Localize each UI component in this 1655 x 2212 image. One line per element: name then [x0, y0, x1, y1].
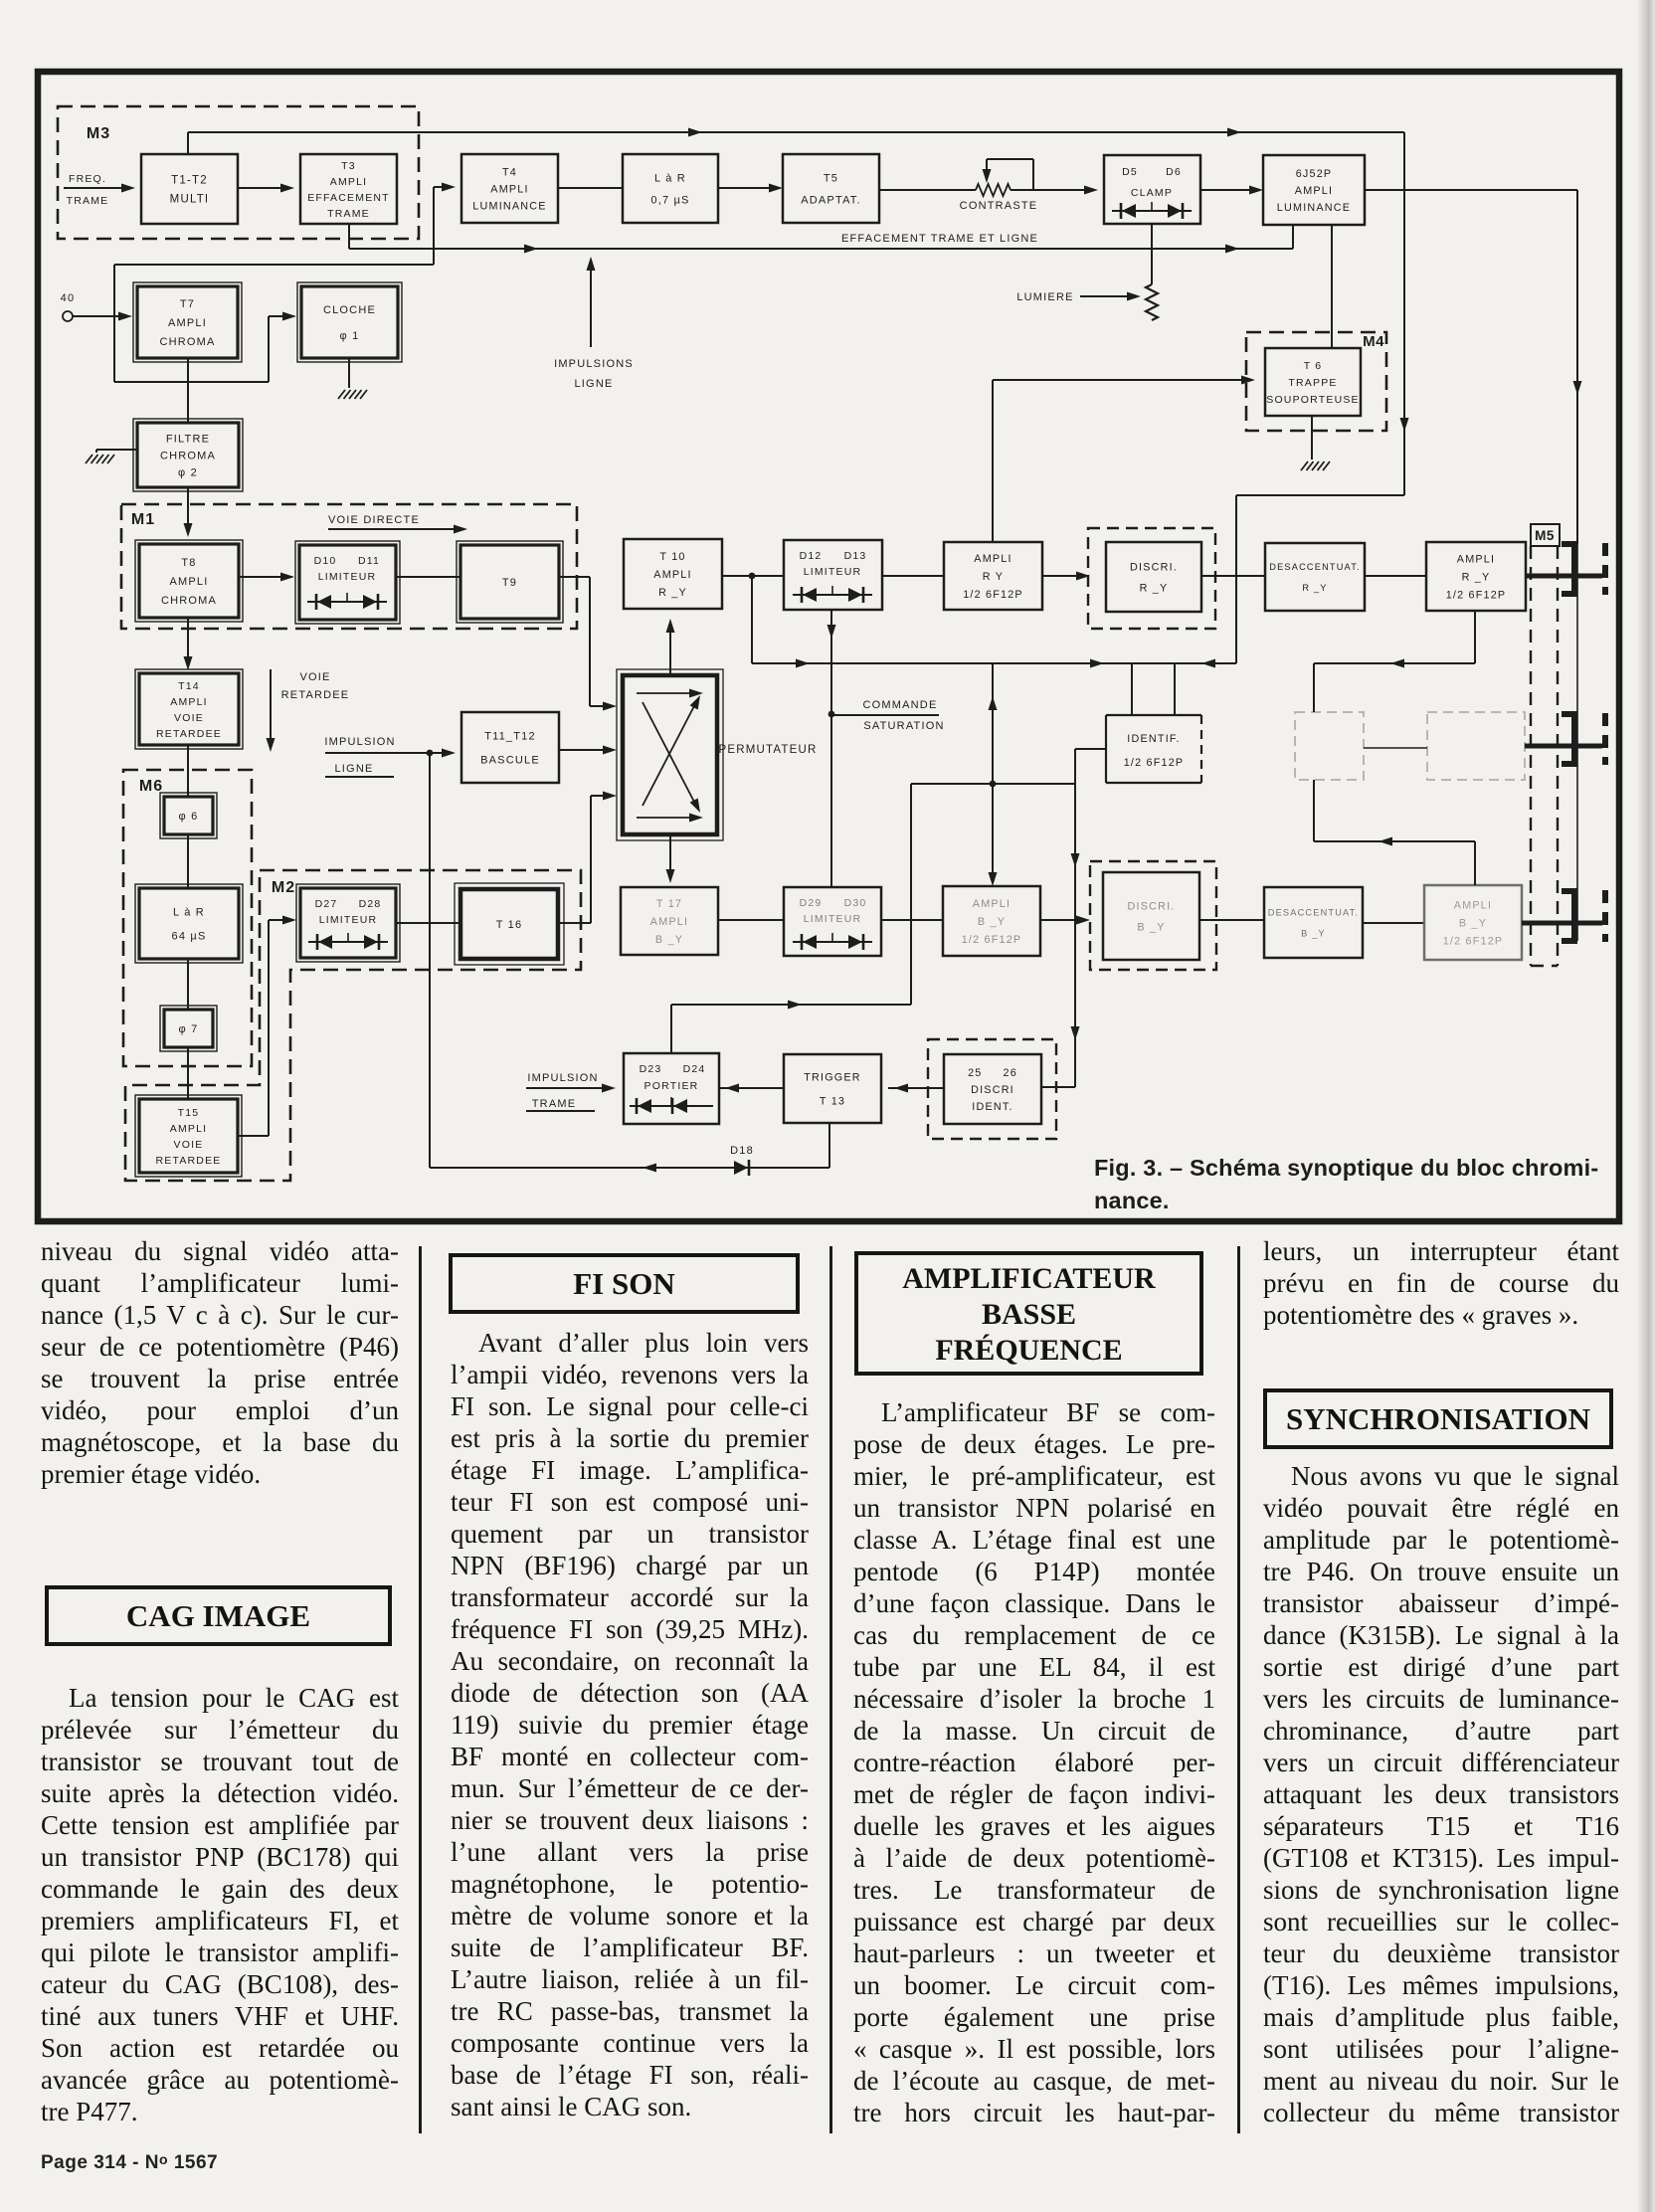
svg-text:TRAME: TRAME: [327, 208, 370, 220]
svg-text:1/2 6F12P: 1/2 6F12P: [963, 589, 1023, 601]
svg-text:0,7 µS: 0,7 µS: [650, 194, 689, 206]
svg-text:RETARDEE: RETARDEE: [156, 1155, 222, 1167]
svg-text:CONTRASTE: CONTRASTE: [960, 200, 1038, 212]
svg-text:TRIGGER: TRIGGER: [804, 1071, 861, 1083]
svg-text:IMPULSION: IMPULSION: [527, 1072, 598, 1084]
svg-text:AMPLI: AMPLI: [168, 317, 207, 329]
svg-text:M4: M4: [1363, 333, 1384, 350]
svg-text:φ 7: φ 7: [179, 1023, 199, 1035]
svg-text:T 6: T 6: [1304, 360, 1323, 372]
svg-text:1/2 6F12P: 1/2 6F12P: [1443, 935, 1504, 947]
svg-text:AMPLI: AMPLI: [973, 898, 1011, 910]
svg-text:φ 1: φ 1: [340, 330, 360, 342]
svg-text:RETARDEE: RETARDEE: [156, 728, 222, 740]
svg-text:LIGNE: LIGNE: [574, 378, 613, 390]
svg-text:R _Y: R _Y: [1462, 571, 1491, 583]
svg-text:PORTIER: PORTIER: [644, 1080, 699, 1092]
svg-text:25 26: 25 26: [968, 1067, 1017, 1079]
svg-text:φ 2: φ 2: [178, 466, 198, 478]
svg-text:FREQ.: FREQ.: [69, 173, 106, 185]
svg-text:Fig. 3. – Schéma synoptique du: Fig. 3. – Schéma synoptique du bloc chro…: [1094, 1155, 1598, 1181]
svg-text:VOIE DIRECTE: VOIE DIRECTE: [328, 514, 420, 526]
svg-text:AMPLI: AMPLI: [170, 1123, 208, 1135]
svg-text:AMPLI: AMPLI: [1457, 553, 1495, 565]
svg-text:D13: D13: [844, 550, 867, 562]
svg-text:B _Y: B _Y: [978, 916, 1006, 928]
svg-text:L à R: L à R: [173, 906, 205, 918]
svg-text:T8: T8: [181, 557, 196, 569]
svg-text:D6: D6: [1166, 166, 1182, 178]
svg-text:nance.: nance.: [1094, 1188, 1170, 1213]
svg-text:DISCRI.: DISCRI.: [1130, 561, 1178, 573]
svg-text:COMMANDE: COMMANDE: [863, 699, 938, 711]
svg-text:40: 40: [61, 292, 76, 304]
svg-text:AMPLI: AMPLI: [1295, 185, 1333, 197]
svg-text:MULTI: MULTI: [170, 194, 210, 206]
svg-text:B _Y: B _Y: [655, 934, 683, 946]
svg-text:T9: T9: [502, 577, 517, 589]
svg-text:B _Y: B _Y: [1459, 917, 1487, 929]
svg-text:D28: D28: [359, 898, 382, 910]
svg-text:R _Y: R _Y: [658, 587, 687, 599]
svg-text:IDENTIF.: IDENTIF.: [1127, 733, 1180, 745]
svg-text:D5: D5: [1122, 166, 1138, 178]
svg-text:LIMITEUR: LIMITEUR: [318, 571, 377, 583]
svg-text:T 10: T 10: [659, 551, 685, 563]
svg-text:D10: D10: [314, 555, 337, 567]
svg-text:LUMINANCE: LUMINANCE: [472, 200, 546, 212]
svg-text:D23: D23: [640, 1063, 662, 1075]
svg-text:PERMUTATEUR: PERMUTATEUR: [718, 744, 817, 756]
svg-text:LIGNE: LIGNE: [334, 763, 373, 775]
svg-text:LIMITEUR: LIMITEUR: [804, 566, 862, 578]
svg-text:RETARDEE: RETARDEE: [281, 689, 350, 701]
svg-text:T7: T7: [180, 298, 195, 310]
svg-text:CLOCHE: CLOCHE: [323, 304, 376, 316]
svg-text:T1-T2: T1-T2: [171, 175, 208, 187]
svg-text:SOUPORTEUSE: SOUPORTEUSE: [1266, 394, 1360, 406]
svg-text:T14: T14: [178, 680, 200, 692]
svg-text:DESACCENTUAT.: DESACCENTUAT.: [1268, 907, 1360, 917]
svg-text:D18: D18: [730, 1145, 754, 1157]
svg-text:AMPLI: AMPLI: [330, 176, 368, 188]
svg-text:L à R: L à R: [654, 172, 686, 184]
svg-text:LUMINANCE: LUMINANCE: [1277, 202, 1351, 214]
svg-text:M5: M5: [1535, 528, 1555, 543]
svg-text:AMPLI: AMPLI: [653, 569, 691, 581]
svg-text:M1: M1: [131, 511, 155, 528]
svg-text:T5: T5: [824, 172, 838, 184]
svg-text:1/2 6F12P: 1/2 6F12P: [1124, 757, 1185, 769]
svg-text:LUMIERE: LUMIERE: [1016, 291, 1073, 303]
svg-text:LIMITEUR: LIMITEUR: [319, 914, 378, 926]
svg-text:CHROMA: CHROMA: [160, 450, 216, 461]
svg-text:T 17: T 17: [656, 898, 682, 910]
svg-text:DESACCENTUAT.: DESACCENTUAT.: [1269, 562, 1361, 572]
svg-text:VOIE: VOIE: [174, 712, 204, 724]
svg-text:TRAPPE: TRAPPE: [1288, 377, 1337, 389]
svg-text:1/2 6F12P: 1/2 6F12P: [962, 934, 1022, 946]
svg-text:EFFACEMENT TRAME ET LIGNE: EFFACEMENT TRAME ET LIGNE: [841, 233, 1038, 245]
svg-text:D30: D30: [844, 897, 867, 909]
svg-text:AMPLI: AMPLI: [650, 916, 688, 928]
svg-text:T11_T12: T11_T12: [484, 730, 536, 742]
svg-text:D11: D11: [358, 555, 380, 567]
svg-text:T15: T15: [178, 1107, 200, 1119]
svg-text:R _Y: R _Y: [1302, 583, 1327, 593]
svg-text:AMPLI: AMPLI: [1454, 899, 1492, 911]
svg-text:CHROMA: CHROMA: [161, 595, 217, 607]
svg-text:M3: M3: [87, 125, 110, 142]
svg-text:FILTRE: FILTRE: [166, 433, 210, 445]
svg-text:VOIE: VOIE: [174, 1139, 204, 1151]
svg-text:TRAME: TRAME: [532, 1098, 577, 1110]
svg-text:64 µS: 64 µS: [172, 930, 207, 942]
svg-text:DISCRI.: DISCRI.: [1128, 900, 1176, 912]
svg-text:IDENT.: IDENT.: [972, 1101, 1012, 1113]
svg-text:6J52P: 6J52P: [1296, 168, 1333, 180]
svg-text:CHROMA: CHROMA: [159, 336, 215, 348]
svg-text:T3: T3: [341, 160, 356, 172]
svg-text:B _Y: B _Y: [1301, 928, 1326, 938]
svg-text:DISCRI: DISCRI: [971, 1084, 1014, 1096]
svg-text:AMPLI: AMPLI: [169, 576, 208, 588]
svg-text:M2: M2: [272, 879, 295, 896]
svg-text:AMPLI: AMPLI: [490, 183, 528, 195]
svg-text:AMPLI: AMPLI: [974, 553, 1011, 565]
svg-text:EFFACEMENT: EFFACEMENT: [307, 192, 390, 204]
svg-text:IMPULSIONS: IMPULSIONS: [554, 358, 634, 370]
svg-text:IMPULSION: IMPULSION: [324, 736, 395, 748]
svg-text:T 16: T 16: [496, 919, 523, 931]
svg-text:VOIE: VOIE: [299, 671, 330, 683]
svg-text:BASCULE: BASCULE: [480, 754, 540, 766]
svg-text:TRAME: TRAME: [67, 195, 109, 207]
svg-text:R _Y: R _Y: [1140, 582, 1169, 594]
svg-text:R Y: R Y: [983, 571, 1004, 583]
svg-text:D29: D29: [800, 897, 823, 909]
svg-text:D12: D12: [800, 550, 823, 562]
svg-text:φ 6: φ 6: [179, 811, 199, 823]
svg-text:CLAMP: CLAMP: [1131, 187, 1173, 199]
svg-text:T4: T4: [502, 166, 517, 178]
svg-text:SATURATION: SATURATION: [863, 720, 944, 732]
svg-text:D24: D24: [683, 1063, 706, 1075]
svg-text:ADAPTAT.: ADAPTAT.: [801, 194, 861, 206]
svg-text:B _Y: B _Y: [1137, 921, 1165, 933]
svg-text:D27: D27: [315, 898, 338, 910]
svg-text:LIMITEUR: LIMITEUR: [804, 913, 862, 925]
svg-text:AMPLI: AMPLI: [170, 696, 208, 708]
svg-text:1/2 6F12P: 1/2 6F12P: [1446, 589, 1507, 601]
svg-text:T 13: T 13: [820, 1095, 845, 1107]
